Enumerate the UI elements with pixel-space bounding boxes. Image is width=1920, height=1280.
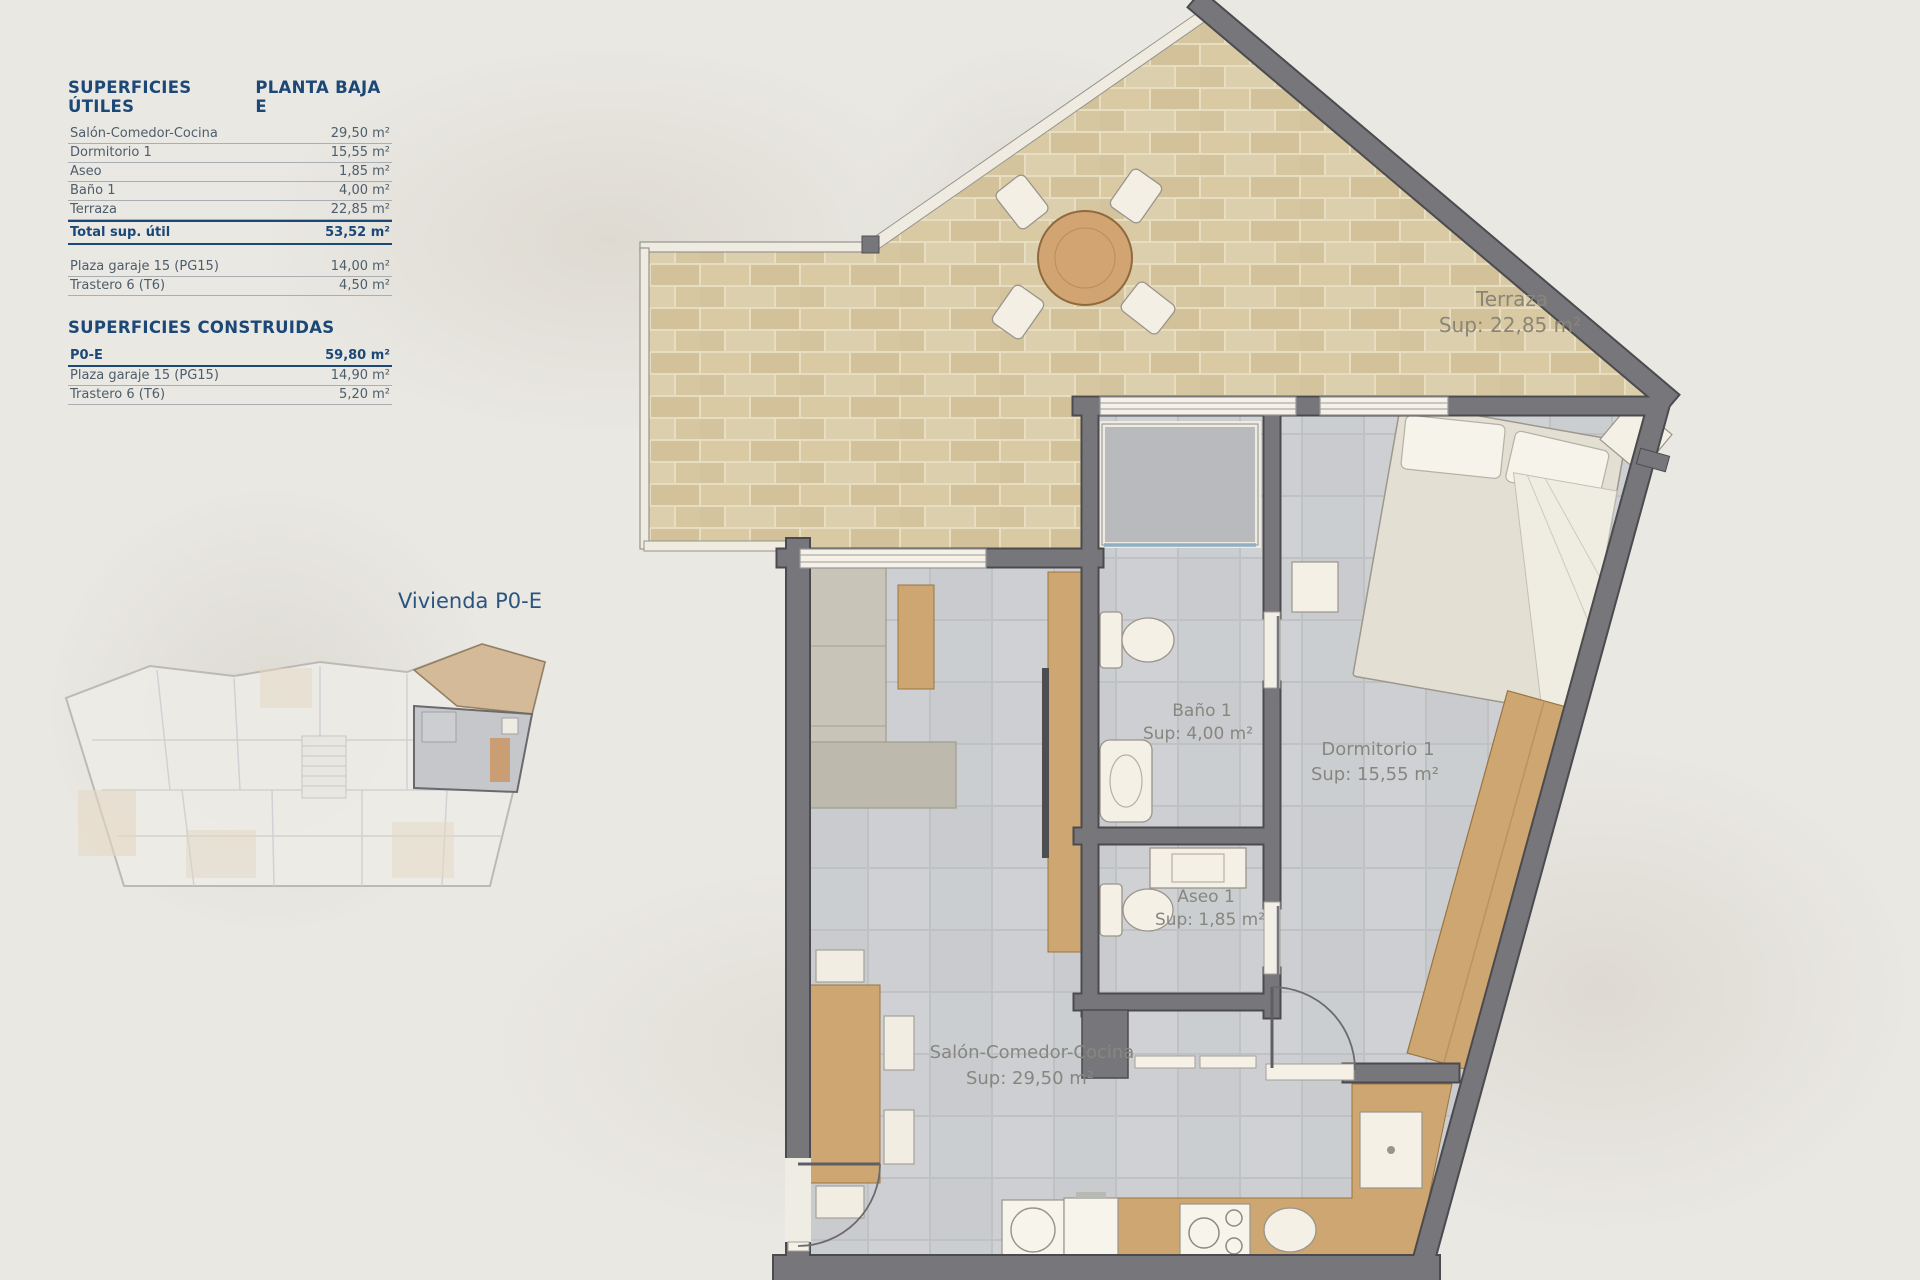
table-row: Trastero 6 (T6)4,50 m²: [68, 277, 392, 296]
aseo-sup: Sup: 1,85 m²: [1155, 910, 1265, 930]
bedroom-window: [1320, 397, 1448, 415]
kitchen-sink-cabinet: [1064, 1192, 1118, 1260]
legend-plan-title: PLANTA BAJA E: [255, 78, 392, 116]
main-floorplan: Terraza Sup: 22,85 m² Baño 1 Sup: 4,00 m…: [640, 6, 1672, 1268]
table-row: Terraza22,85 m²: [68, 201, 392, 220]
overview-highlighted-unit: [414, 644, 545, 792]
kitchen-sink-oval: [1264, 1208, 1316, 1252]
dining-table: [810, 985, 880, 1183]
washing-machine: [1002, 1200, 1064, 1260]
table-row: Trastero 6 (T6)5,20 m²: [68, 386, 392, 405]
bano-sup: Sup: 4,00 m²: [1143, 724, 1253, 744]
aseo-sliding-door: [1264, 902, 1280, 986]
terrace-round-table: [1038, 211, 1132, 305]
table-row-total: Total sup. útil53,52 m²: [68, 220, 392, 245]
bedside-table: [1292, 562, 1338, 612]
shower: [1102, 424, 1258, 545]
aseo-label: Aseo 1: [1177, 887, 1235, 907]
dormitorio-label: Dormitorio 1: [1321, 739, 1434, 760]
table-row: Dormitorio 115,55 m²: [68, 144, 392, 163]
terrace-sup: Sup: 22,85 m²: [1439, 313, 1581, 337]
table-row: Plaza garaje 15 (PG15)14,00 m²: [68, 258, 392, 277]
table-row: Salón-Comedor-Cocina29,50 m²: [68, 125, 392, 144]
table-row: P0-E59,80 m²: [68, 347, 392, 367]
overview-caption: Vivienda P0-E: [398, 589, 542, 613]
table-row: Baño 14,00 m²: [68, 182, 392, 201]
living-window: [800, 549, 986, 568]
legend-title: SUPERFICIES ÚTILES: [68, 78, 255, 116]
sink-aseo: [1150, 848, 1246, 888]
threshold: [1135, 1056, 1195, 1068]
bano-label: Baño 1: [1172, 701, 1231, 721]
dining-chair: [816, 1186, 864, 1218]
bathroom-sliding-door: [1264, 612, 1280, 700]
salon-label: Salón-Comedor-Cocina: [930, 1042, 1135, 1063]
bathroom-window: [1100, 397, 1296, 415]
coffee-table: [898, 585, 934, 689]
dining-chair: [816, 950, 864, 982]
dormitorio-sup: Sup: 15,55 m²: [1311, 764, 1439, 785]
overview-mini-plan: [66, 644, 545, 886]
floorplan-page: { "legend": { "title": "SUPERFICIES ÚTIL…: [0, 0, 1920, 1280]
terrace-label: Terraza: [1475, 287, 1548, 311]
salon-sup: Sup: 29,50 m²: [966, 1068, 1094, 1089]
sink-bano: [1100, 740, 1152, 822]
dining-chair: [884, 1110, 914, 1164]
table-row: Plaza garaje 15 (PG15)14,90 m²: [68, 367, 392, 386]
threshold: [1200, 1056, 1256, 1068]
surface-legend: SUPERFICIES ÚTILES PLANTA BAJA E Salón-C…: [68, 78, 392, 405]
built-title: SUPERFICIES CONSTRUIDAS: [68, 318, 392, 337]
dining-chair: [884, 1016, 914, 1070]
table-row: Aseo1,85 m²: [68, 163, 392, 182]
